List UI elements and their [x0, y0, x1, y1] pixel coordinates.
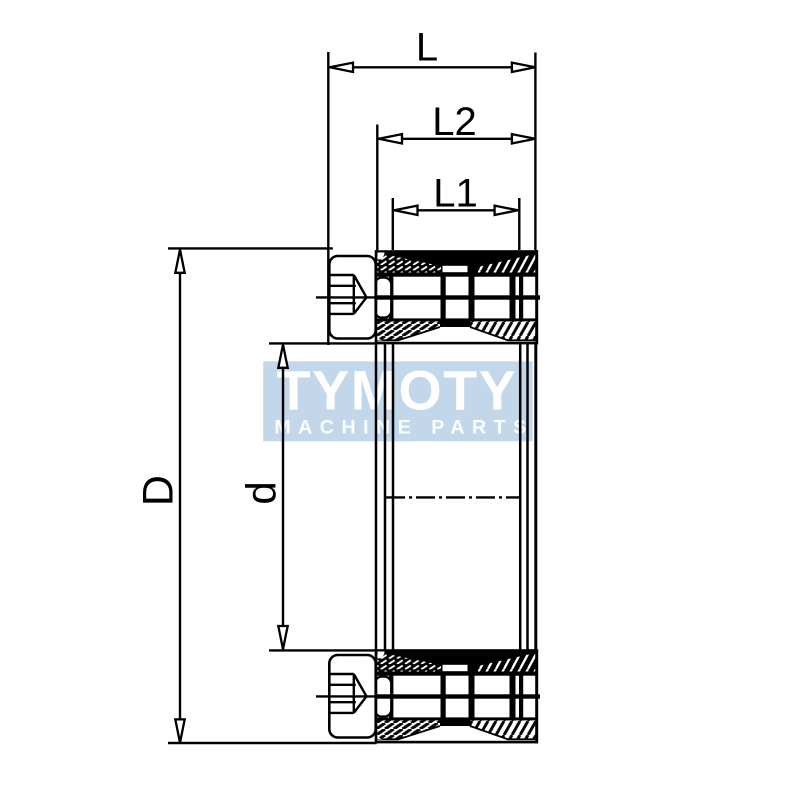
svg-text:d: d [238, 481, 285, 504]
svg-text:L2: L2 [432, 100, 477, 144]
svg-text:D: D [135, 475, 183, 506]
svg-text:MACHINE PARTS: MACHINE PARTS [274, 416, 533, 438]
svg-text:L: L [416, 25, 438, 69]
svg-text:L1: L1 [433, 172, 478, 216]
svg-text:TYMOTY: TYMOTY [277, 359, 518, 421]
